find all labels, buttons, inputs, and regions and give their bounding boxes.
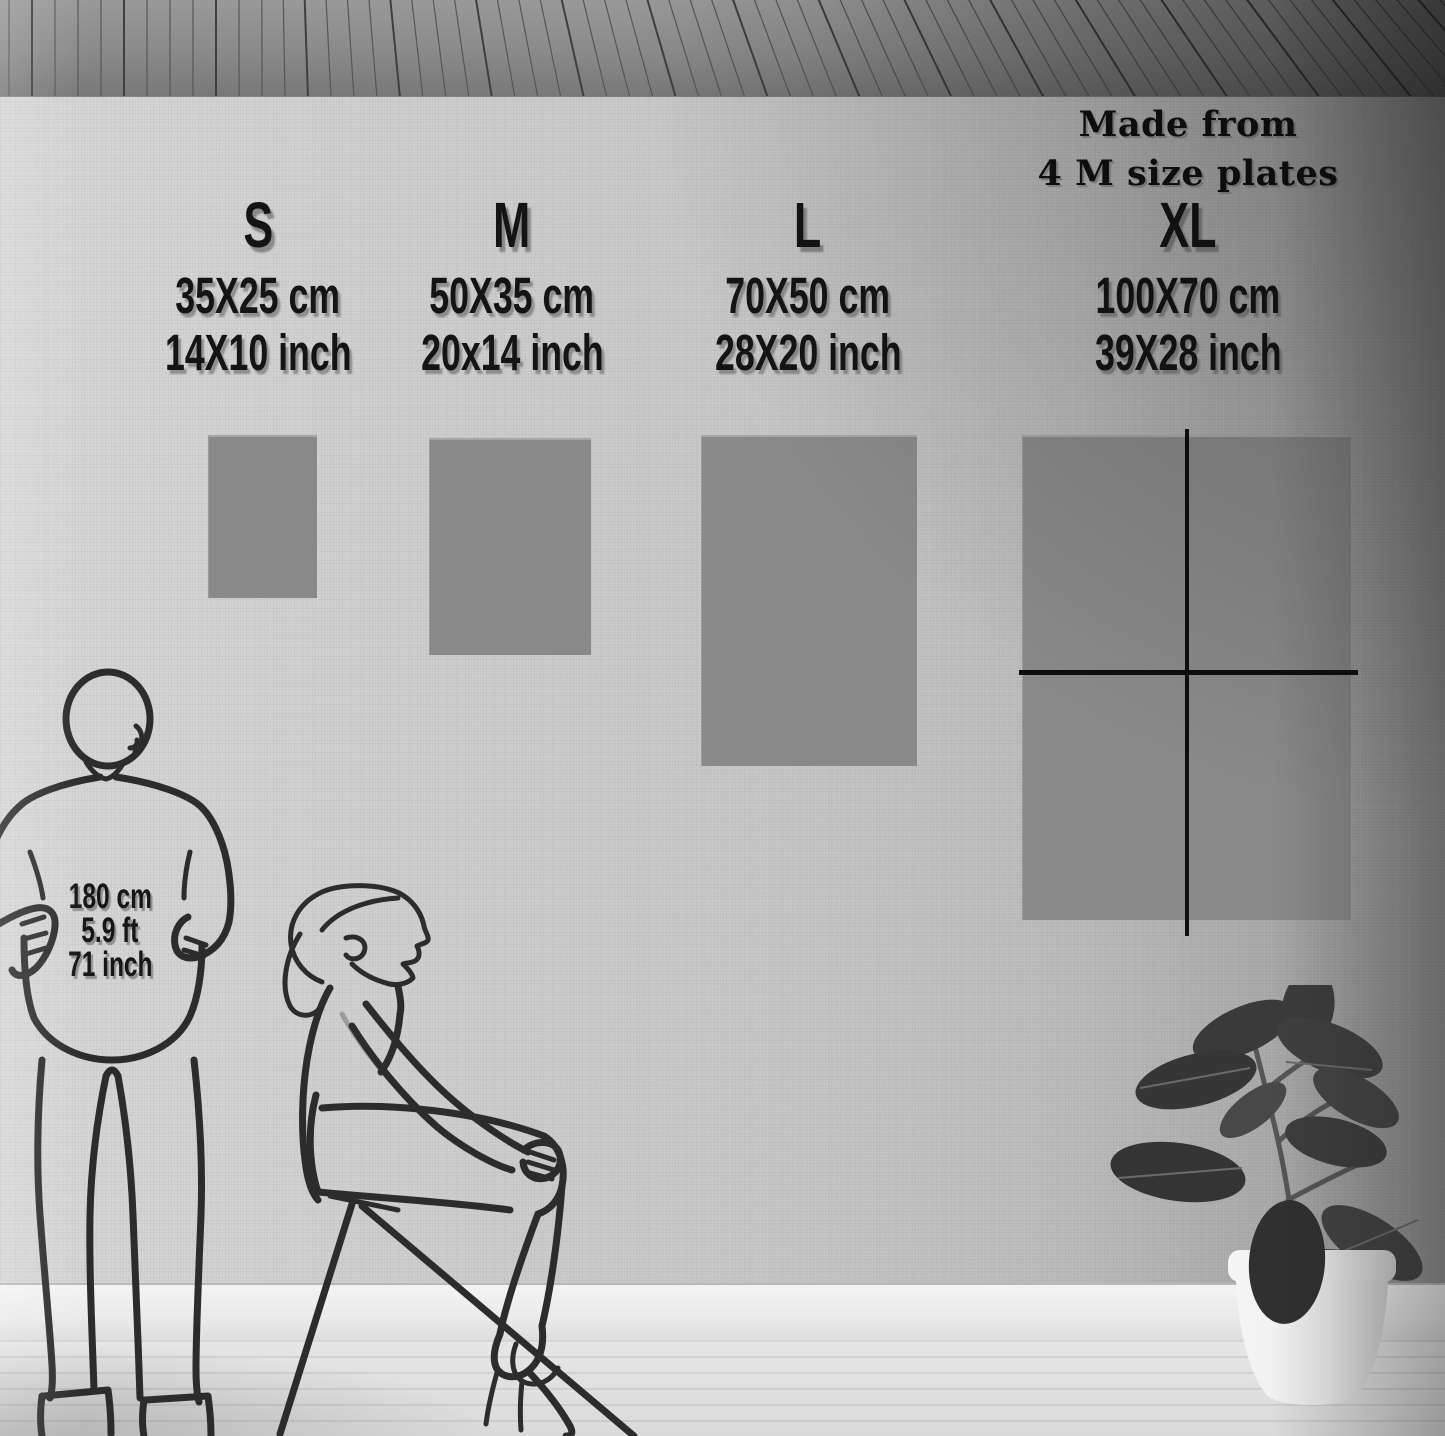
size-cm-xl: 100X70 cm — [1018, 270, 1358, 321]
size-chart-scene: Made from 4 M size plates S 35X25 cm 14X… — [0, 0, 1445, 1436]
made-from-note: Made from 4 M size plates — [1018, 100, 1358, 198]
xl-vertical-divider-line — [1185, 429, 1189, 936]
standing-man-figure — [0, 650, 270, 1436]
height-ft: 5.9 ft — [10, 914, 210, 948]
poster-size-m — [429, 438, 591, 655]
poster-size-s — [208, 435, 317, 598]
size-label-m: M — [342, 193, 682, 257]
size-inch-xl: 39X28 inch — [1018, 327, 1358, 378]
ceiling-shading — [0, 0, 1445, 96]
height-cm: 180 cm — [10, 880, 210, 914]
poster-size-l — [701, 435, 917, 766]
size-cm-m: 50X35 cm — [342, 270, 682, 321]
size-label-xl: XL — [1018, 193, 1358, 257]
size-cm-l: 70X50 cm — [638, 270, 978, 321]
reference-height-label: 180 cm 5.9 ft 71 inch — [10, 880, 210, 982]
seated-woman-figure — [255, 880, 650, 1436]
size-inch-m: 20x14 inch — [342, 327, 682, 378]
size-inch-l: 28X20 inch — [638, 327, 978, 378]
height-inch: 71 inch — [10, 948, 210, 982]
xl-horizontal-divider-line — [1019, 670, 1358, 675]
note-line-1: Made from — [1018, 100, 1358, 149]
size-label-l: L — [638, 193, 978, 257]
wood-ceiling — [0, 0, 1445, 96]
potted-plant — [1085, 985, 1445, 1436]
